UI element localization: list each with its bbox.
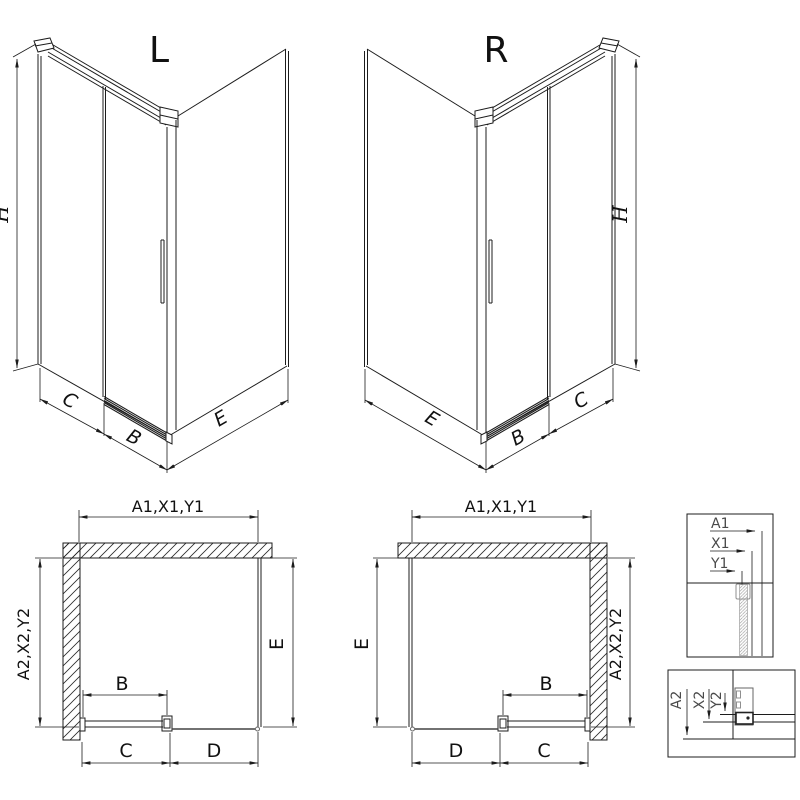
plan-left-depth-label: A2,X2,Y2 [14, 608, 33, 680]
plan-right-width-label: A1,X1,Y1 [465, 497, 537, 516]
plan-left-width-label: A1,X1,Y1 [132, 497, 204, 516]
detail-width-frame [687, 514, 773, 657]
roller-wheel [746, 716, 749, 719]
plan-left-e-label: E [266, 638, 288, 650]
glass-section-strip [740, 585, 748, 656]
plan-right-depth-label: A2,X2,Y2 [606, 608, 625, 680]
drawing-sheet: A1 X1 Y1 A2 X2 Y2 L R H C B [0, 0, 800, 800]
iso-left-height-label: H [0, 205, 13, 224]
iso-right-e-label: E [421, 406, 442, 431]
iso-labels: L R H C B E H C B E [0, 30, 632, 450]
detail-height-section: A2 X2 Y2 [668, 670, 795, 757]
plan-right-c-label: C [537, 740, 550, 762]
plan-right-top-wall [398, 543, 607, 558]
plan-right-view [373, 510, 635, 767]
iso-left-view [13, 38, 289, 473]
variant-right-title: R [483, 30, 508, 71]
roller-carriage [736, 713, 753, 725]
variant-left-title: L [149, 30, 169, 71]
iso-right-view [365, 38, 641, 473]
iso-right-geometry [365, 38, 641, 473]
plan-left-view [35, 510, 297, 767]
plan-right-d-label: D [449, 740, 464, 762]
iso-left-geometry [13, 38, 289, 473]
plan-labels: A1,X1,Y1 A2,X2,Y2 E B C D A1,X1,Y1 E A2,… [14, 497, 625, 762]
plan-left-d-label: D [207, 740, 222, 762]
detail-width-section: A1 X1 Y1 [687, 514, 773, 657]
iso-left-c-label: C [59, 388, 82, 414]
plan-right-e-label: E [351, 638, 373, 650]
iso-left-e-label: E [210, 406, 231, 431]
iso-right-c-label: C [570, 388, 593, 414]
detail-a1-label: A1 [711, 516, 729, 532]
plan-right-b-label: B [539, 673, 552, 695]
plan-left-c-label: C [119, 740, 132, 762]
iso-right-b-label: B [507, 425, 529, 451]
detail-y2-label: Y2 [709, 691, 725, 709]
detail-a2-label: A2 [669, 691, 685, 709]
plan-left-b-label: B [115, 673, 128, 695]
technical-drawing: A1 X1 Y1 A2 X2 Y2 L R H C B [0, 0, 800, 800]
iso-right-height-label: H [608, 205, 632, 224]
plan-right-side-wall [590, 543, 607, 740]
detail-y1-label: Y1 [710, 556, 728, 572]
plan-left-top-wall [63, 543, 272, 558]
detail-x2-label: X2 [692, 691, 708, 710]
plan-left-side-wall [63, 543, 80, 740]
detail-x1-label: X1 [711, 536, 730, 552]
